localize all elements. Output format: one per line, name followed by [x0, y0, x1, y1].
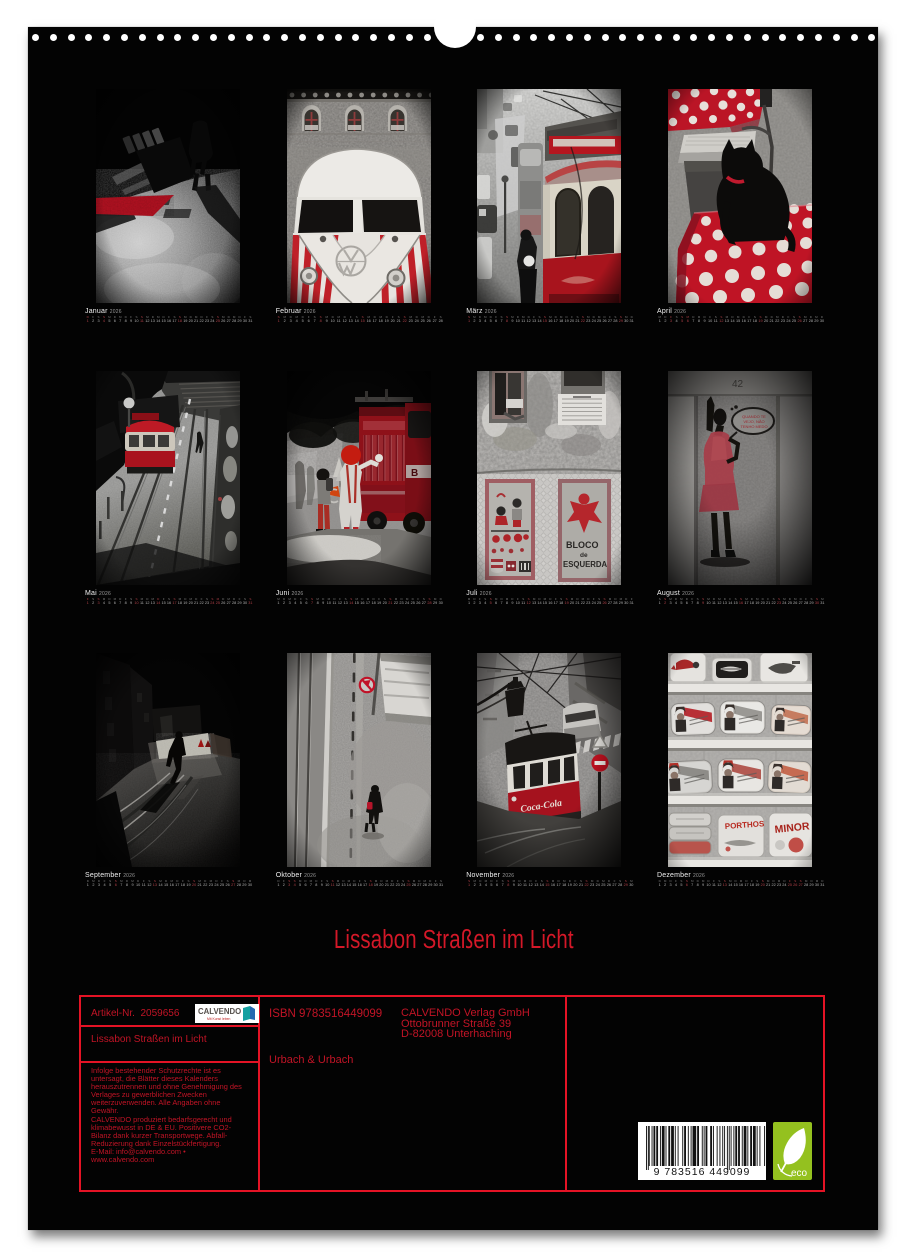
svg-text:eco: eco	[791, 1168, 808, 1179]
